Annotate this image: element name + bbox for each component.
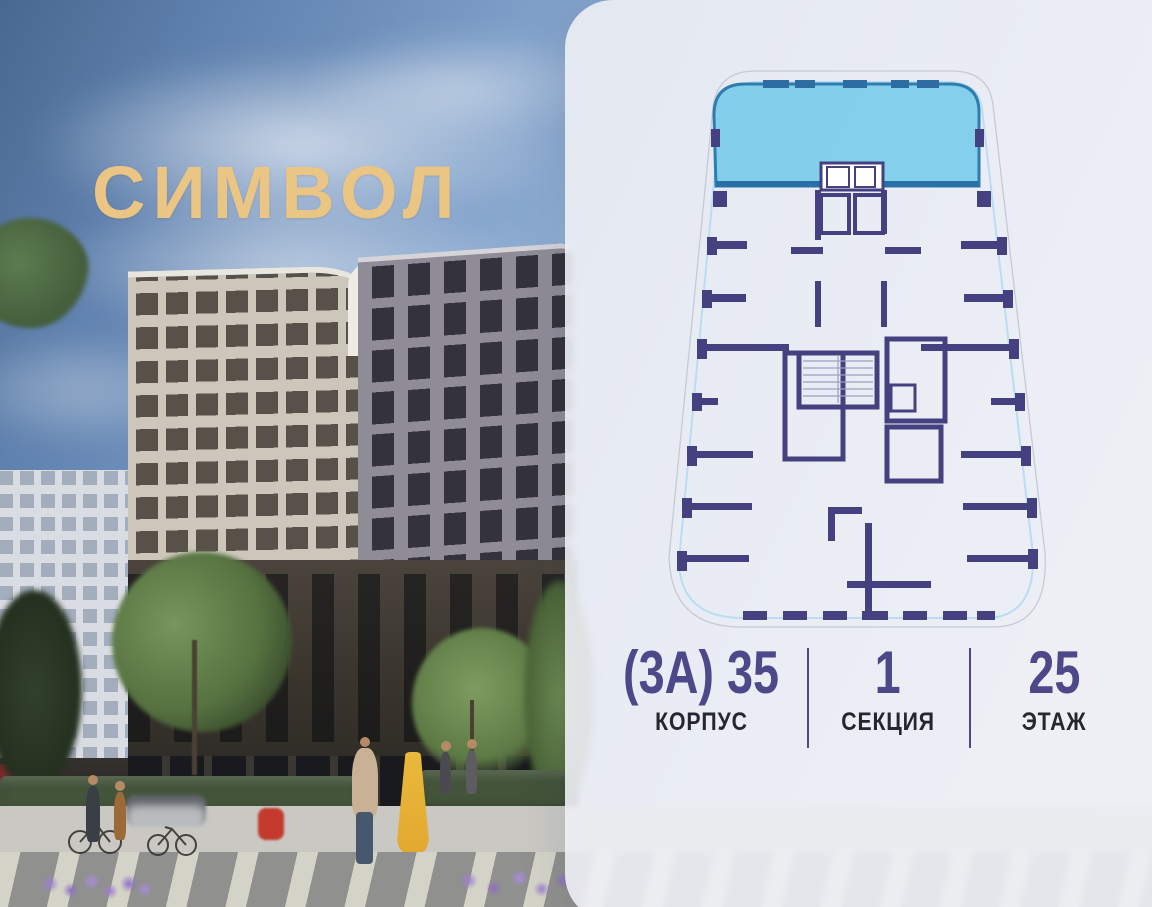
- floorplan: [663, 55, 1053, 630]
- info-floor: 25 ЭТАЖ: [969, 642, 1140, 752]
- korpus-value: (3А) 35: [623, 642, 779, 704]
- info-divider: [969, 648, 971, 748]
- stair-hatch: [803, 355, 873, 403]
- pedestrian: [466, 750, 477, 794]
- floor-value: 25: [1028, 642, 1080, 704]
- info-divider: [807, 648, 809, 748]
- street-tree: [112, 552, 292, 732]
- section-value: 1: [875, 642, 901, 704]
- pedestrian: [440, 752, 451, 794]
- apartment-panel: (3А) 35 КОРПУС 1 СЕКЦИЯ 25 ЭТАЖ: [565, 0, 1152, 907]
- section-label: СЕКЦИЯ: [841, 708, 935, 737]
- pedestrian: [86, 786, 100, 842]
- red-scooter: [258, 808, 284, 840]
- brand-logo: СИМВОЛ: [92, 150, 512, 235]
- info-section: 1 СЕКЦИЯ: [807, 642, 969, 752]
- floor-label: ЭТАЖ: [1022, 708, 1087, 737]
- tree-trunk: [192, 640, 197, 775]
- flowers: [36, 864, 152, 907]
- core-rooms: [785, 195, 945, 481]
- parked-bicycles: [58, 798, 208, 858]
- highlighted-apartment[interactable]: [714, 80, 979, 190]
- info-korpus: (3А) 35 КОРПУС: [595, 642, 807, 752]
- korpus-label: КОРПУС: [655, 708, 748, 737]
- pedestrian: [352, 748, 378, 818]
- screenshot-root: СИМВОЛ: [0, 0, 1152, 907]
- pedestrian: [114, 792, 126, 840]
- apartment-info: (3А) 35 КОРПУС 1 СЕКЦИЯ 25 ЭТАЖ: [595, 642, 1140, 752]
